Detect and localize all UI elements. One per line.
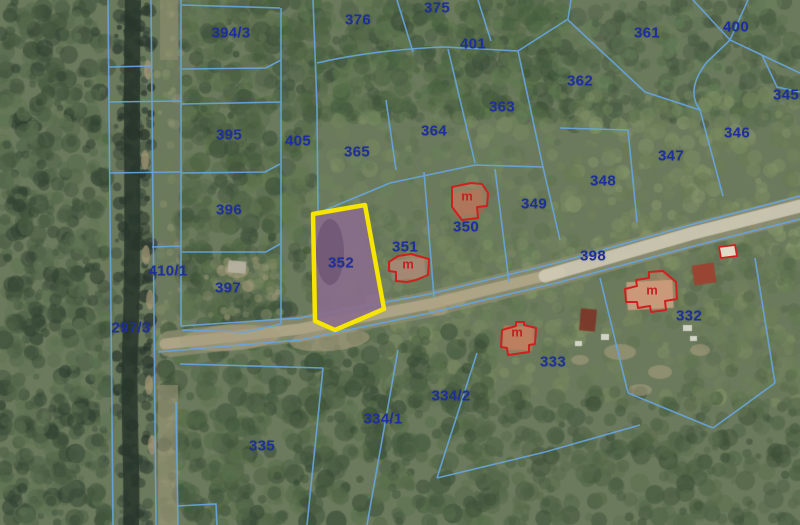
parcel-label-361[interactable]: 361 [634, 25, 660, 42]
boundary-line [397, 0, 413, 52]
boundary-line [386, 100, 396, 170]
parcel-label-394-3[interactable]: 394/3 [211, 25, 250, 42]
boundary-line [109, 101, 181, 102]
parcel-label-395[interactable]: 395 [216, 127, 242, 144]
parcel-label-347[interactable]: 347 [658, 148, 684, 165]
cadastral-map[interactable]: 394/337637540136140034534636236336436540… [0, 0, 800, 525]
boundary-line [518, 0, 571, 51]
boundary-line [180, 364, 323, 368]
parcel-label-396[interactable]: 396 [216, 202, 242, 219]
parcel-label-297-3[interactable]: 297/3 [111, 320, 150, 337]
parcel-label-397[interactable]: 397 [215, 280, 241, 297]
boundary-line [177, 504, 217, 525]
boundary-line [182, 5, 280, 8]
building-label-350: m [461, 189, 473, 204]
parcel-label-398[interactable]: 398 [580, 248, 606, 265]
parcel-label-334-1[interactable]: 334/1 [363, 411, 402, 428]
parcel-label-351[interactable]: 351 [392, 239, 418, 256]
parcel-label-362[interactable]: 362 [567, 73, 593, 90]
parcel-label-333[interactable]: 333 [540, 354, 566, 371]
boundary-line [448, 49, 475, 163]
parcel-label-365[interactable]: 365 [344, 144, 370, 161]
parcel-label-401[interactable]: 401 [460, 36, 486, 53]
building-outline-small [719, 245, 737, 258]
parcel-boundary-lines [108, 0, 800, 525]
building-label-351: m [402, 257, 414, 272]
parcel-label-350[interactable]: 350 [453, 219, 479, 236]
boundary-line [182, 244, 280, 252]
building-label-333: m [511, 325, 523, 340]
boundary-line [109, 66, 151, 67]
boundary-line [560, 128, 628, 130]
boundary-line [518, 51, 543, 167]
boundary-line [628, 130, 637, 222]
parcel-label-364[interactable]: 364 [421, 123, 447, 140]
building-label-332: m [646, 283, 658, 298]
parcel-label-345[interactable]: 345 [773, 87, 799, 104]
boundary-line [182, 164, 280, 173]
boundary-line [495, 169, 509, 282]
boundary-line [568, 20, 723, 196]
boundary-line [158, 219, 800, 352]
boundary-line [693, 0, 800, 73]
parcel-label-405[interactable]: 405 [285, 133, 311, 150]
boundary-line [600, 278, 628, 393]
boundary-line [437, 425, 640, 478]
cadastral-overlay [0, 0, 800, 525]
boundary-line [109, 172, 181, 173]
boundary-line [424, 172, 434, 297]
boundary-line [755, 258, 775, 383]
parcel-label-400[interactable]: 400 [723, 19, 749, 36]
boundary-line [108, 0, 113, 525]
boundary-line [182, 102, 281, 104]
parcel-label-375[interactable]: 375 [424, 0, 450, 17]
boundary-line [317, 47, 518, 63]
parcel-label-332[interactable]: 332 [676, 308, 702, 325]
parcel-label-334-2[interactable]: 334/2 [431, 388, 470, 405]
boundary-line [437, 353, 477, 478]
boundary-line [152, 246, 181, 247]
parcel-label-348[interactable]: 348 [590, 173, 616, 190]
boundary-line [307, 368, 323, 525]
boundary-line [628, 393, 713, 428]
parcel-label-363[interactable]: 363 [489, 99, 515, 116]
boundary-line [182, 60, 281, 69]
boundary-line [713, 383, 775, 428]
parcel-label-349[interactable]: 349 [521, 196, 547, 213]
parcel-label-346[interactable]: 346 [724, 125, 750, 142]
boundary-line [181, 196, 800, 326]
parcel-label-376[interactable]: 376 [345, 12, 371, 29]
parcel-label-335[interactable]: 335 [249, 438, 275, 455]
boundary-line [313, 0, 318, 213]
boundary-line [694, 0, 748, 110]
parcel-label-352[interactable]: 352 [328, 255, 354, 272]
boundary-line [367, 350, 398, 525]
building-outlines [389, 183, 737, 355]
parcel-label-410-1[interactable]: 410/1 [148, 263, 187, 280]
